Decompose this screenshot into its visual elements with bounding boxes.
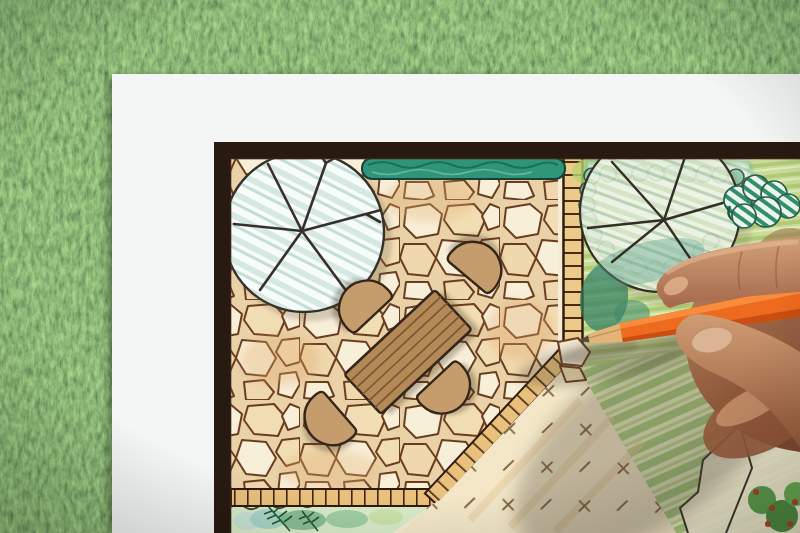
- vignette: [0, 0, 800, 533]
- photo-svg: [0, 0, 800, 533]
- photo-of-garden-plan-drawing: [0, 0, 800, 533]
